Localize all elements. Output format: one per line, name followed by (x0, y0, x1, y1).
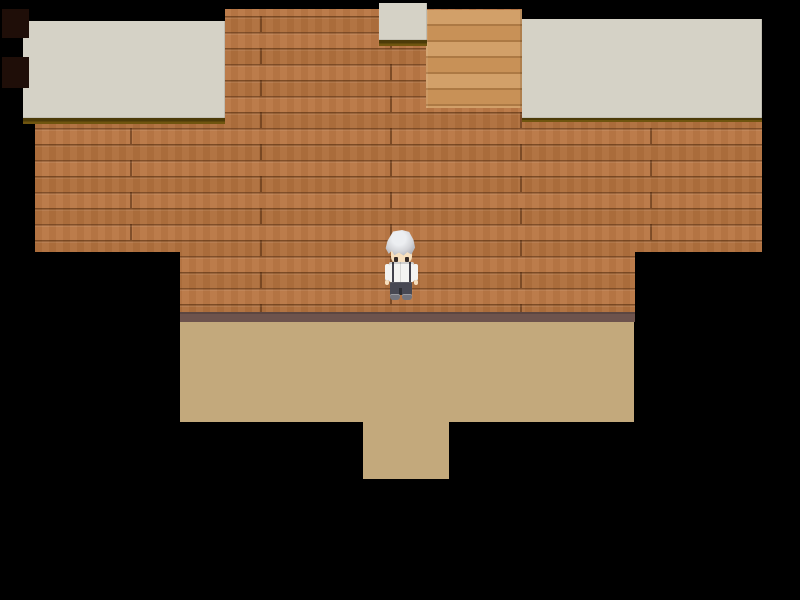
ceiling-trim-top (379, 40, 427, 46)
floor-doorway[interactable] (363, 422, 449, 479)
ceiling-trim-left (23, 118, 225, 124)
character-left-shoe (390, 294, 400, 300)
wall-baseboard (180, 312, 635, 322)
ceiling-ledge-right (522, 19, 762, 118)
wood-panel (426, 10, 522, 108)
character-hair (385, 230, 416, 256)
dark-alcove-lower (2, 57, 29, 88)
ceiling-ledge-left (23, 21, 225, 118)
character-shirt (389, 262, 414, 282)
ceiling-trim-right (522, 118, 762, 122)
game-viewport (0, 0, 800, 600)
player-character[interactable] (383, 230, 419, 300)
floor[interactable] (180, 322, 634, 422)
dark-alcove-upper (2, 9, 29, 38)
ceiling-ledge-top (379, 3, 427, 40)
character-right-hand (414, 280, 418, 285)
character-right-shoe (402, 294, 412, 300)
